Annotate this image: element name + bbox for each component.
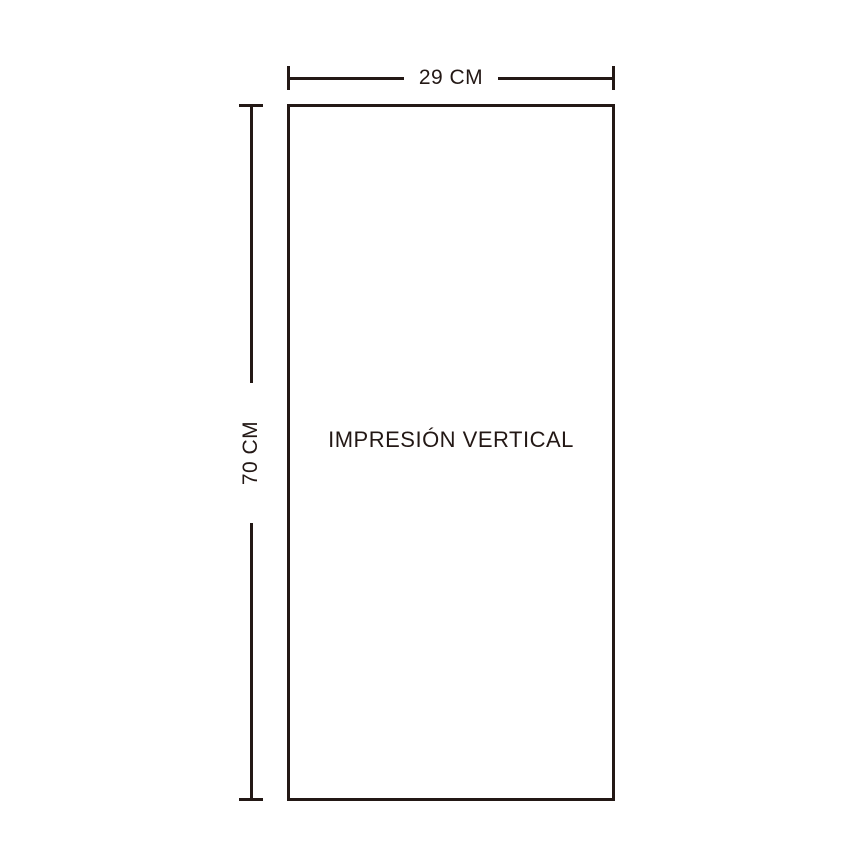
dimension-line-segment: [290, 77, 404, 80]
dimension-end-tick-icon: [239, 798, 263, 801]
height-dimension-line: 70 CM: [239, 104, 263, 801]
dimension-line-segment: [498, 77, 612, 80]
dimension-end-tick-icon: [612, 66, 615, 90]
print-area-rectangle: IMPRESIÓN VERTICAL: [287, 104, 615, 801]
height-dimension-label-box: 70 CM: [219, 383, 283, 523]
width-dimension-line: 29 CM: [287, 66, 615, 90]
width-dimension-label: 29 CM: [404, 66, 498, 90]
print-area-label: IMPRESIÓN VERTICAL: [328, 427, 574, 453]
dimension-line-segment: [250, 523, 253, 799]
diagram-canvas: 29 CM 70 CM IMPRESIÓN VERTICAL: [0, 0, 862, 866]
dimension-line-segment: [250, 107, 253, 383]
height-dimension-label: 70 CM: [239, 420, 263, 484]
